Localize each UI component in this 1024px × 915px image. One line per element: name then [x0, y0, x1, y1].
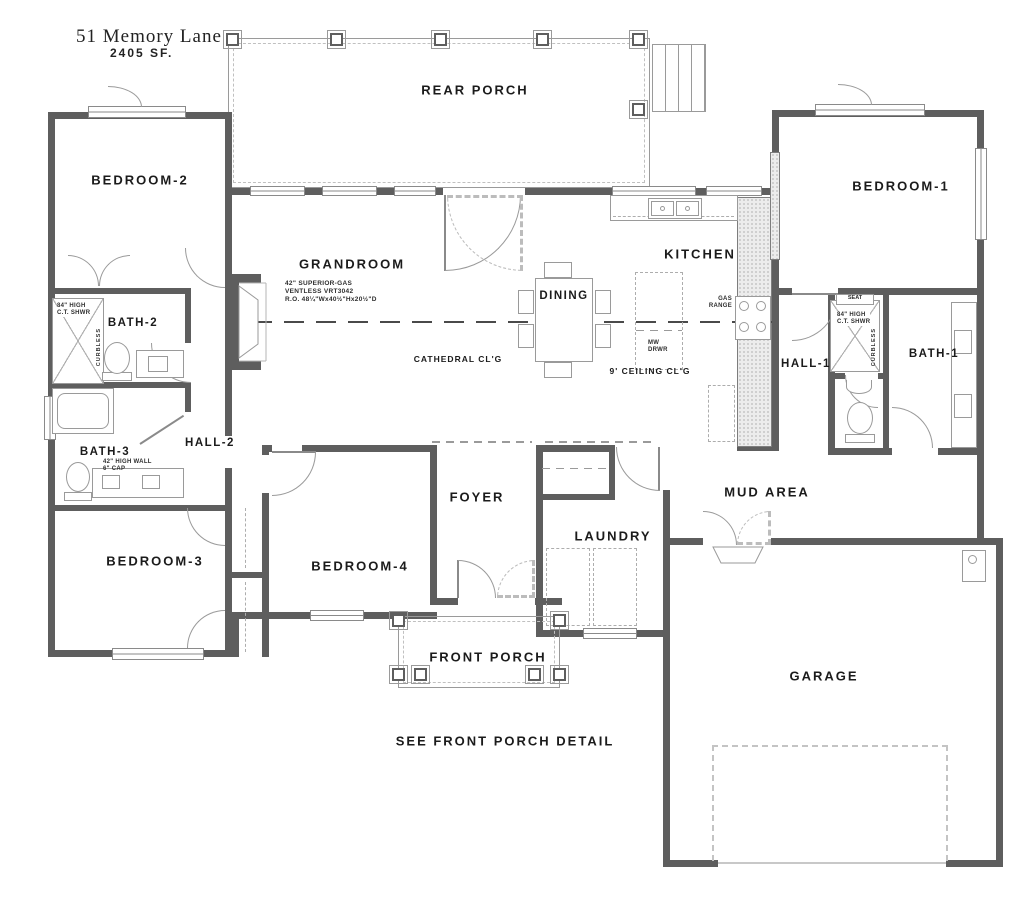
fireplace [226, 272, 274, 372]
kitchen-island [635, 272, 683, 370]
wall-segment [771, 538, 1003, 545]
room-label-bedroom-1: BEDROOM-1 [852, 179, 949, 194]
vanity-sink [148, 356, 168, 372]
rear-porch-steps [652, 44, 706, 112]
wall-segment [883, 295, 889, 453]
wall-segment [185, 288, 191, 343]
cased-opening [545, 441, 657, 443]
door-swing [703, 511, 737, 545]
vanity-sink [102, 475, 120, 489]
wall-segment [663, 490, 670, 637]
room-label-dining: DINING [537, 290, 590, 302]
room-label-bath-3: BATH-3 [80, 446, 130, 458]
door-leaf-diagonal [139, 415, 184, 445]
dining-chair [595, 290, 611, 314]
mud-lockers [708, 385, 735, 442]
wall-segment [537, 494, 615, 500]
shower-spec-line2: C.T. SHWR [57, 310, 90, 316]
wall-segment [828, 373, 845, 379]
wall-sink [846, 380, 872, 394]
toilet-bowl [847, 402, 873, 434]
bath3-wall-note: 42" HIGH WALL 6" CAP [103, 459, 152, 473]
toilet-tank [845, 434, 875, 443]
wall-segment [225, 572, 265, 578]
note-see-front-porch-detail: SEE FRONT PORCH DETAIL [396, 734, 615, 749]
shower-spec-line1: 84" HIGH [57, 303, 86, 309]
porch-column [392, 614, 405, 627]
burner [739, 301, 749, 311]
room-label-bedroom-3: BEDROOM-3 [106, 554, 203, 569]
gas-range-note-line1: GAS [718, 296, 732, 302]
window [394, 186, 436, 196]
door-swing-dashed [737, 511, 771, 545]
dining-chair [544, 262, 572, 278]
shower-spec-line2: C.T. SHWR [837, 319, 870, 325]
room-label-kitchen: KITCHEN [664, 247, 736, 262]
wall-segment [663, 630, 670, 867]
dining-chair [518, 324, 534, 348]
burner [739, 322, 749, 332]
door-swing [185, 248, 225, 288]
plan-square-footage: 2405 SF. [110, 46, 173, 60]
porch-column [330, 33, 343, 46]
shower-spec-line1: 84" HIGH [837, 312, 866, 318]
wall-segment [225, 112, 232, 192]
cased-opening [432, 441, 532, 443]
burner [756, 322, 766, 332]
bathtub-inner [57, 393, 109, 429]
porch-column [414, 668, 427, 681]
closet-door-swing [187, 508, 225, 546]
room-label-hall-2: HALL-2 [185, 437, 235, 449]
porch-column [434, 33, 447, 46]
wall-segment [663, 538, 703, 545]
dining-chair [518, 290, 534, 314]
sink-drain [685, 206, 690, 211]
wall-segment [828, 448, 892, 455]
microwave-drawer-note: MW DRWR [648, 340, 668, 354]
fireplace-spec-line3: R.O. 48¼"Wx40½"Hx20½"D [285, 296, 377, 303]
burner [756, 301, 766, 311]
window [815, 104, 925, 116]
plan-address: 51 Memory Lane [76, 26, 222, 48]
porch-column [528, 668, 541, 681]
wall-segment [430, 598, 458, 605]
porch-column [553, 614, 566, 627]
wall-segment [302, 445, 437, 452]
window [112, 648, 204, 660]
window-swing-mark [838, 84, 872, 105]
wall-segment [48, 288, 191, 294]
note-cathedral-ceiling: CATHEDRAL CL'G [414, 354, 502, 364]
vanity-sink [142, 475, 160, 489]
room-label-laundry: LAUNDRY [574, 529, 651, 544]
toilet-tank [64, 492, 92, 501]
garage-door-clearance [712, 745, 948, 861]
door-swing [892, 407, 933, 448]
closet-door-swing [187, 610, 225, 648]
window [88, 106, 186, 118]
window [975, 148, 987, 240]
toilet-bowl [104, 342, 130, 374]
porch-column [392, 668, 405, 681]
room-label-mud-area: MUD AREA [724, 485, 810, 500]
room-label-bath-1: BATH-1 [909, 348, 959, 360]
closet-door-swing [99, 255, 130, 286]
wall-segment [996, 538, 1003, 867]
rear-porch-outline [228, 38, 650, 188]
wall-segment [946, 860, 1003, 867]
sink-drain [660, 206, 665, 211]
mw-line1: MW [648, 340, 659, 346]
garage-door-opening [718, 862, 946, 864]
fireplace-spec-line1: 42" SUPERIOR-GAS [285, 280, 352, 287]
gas-range-note: GAS RANGE [690, 296, 732, 310]
ceiling-ridge-centerline [252, 321, 772, 323]
porch-column [226, 33, 239, 46]
floor-plan: 51 Memory Lane 2405 SF. REAR PORCH [0, 0, 1024, 915]
door-swing-dashed [497, 560, 535, 598]
room-label-rear-porch: REAR PORCH [421, 83, 528, 98]
bath3-wall-line2: 6" CAP [103, 466, 125, 472]
porch-column [632, 103, 645, 116]
door-swing [616, 447, 660, 491]
room-label-hall-1: HALL-1 [781, 358, 831, 370]
window [310, 610, 364, 621]
mw-line2: DRWR [648, 347, 668, 353]
wall-hatch [770, 152, 780, 260]
fireplace-spec-line2: VENTLESS VRT3042 [285, 288, 353, 295]
gas-range-note-line2: RANGE [709, 303, 732, 309]
vanity-sink [954, 394, 972, 418]
window-swing-mark [108, 86, 142, 107]
room-label-front-porch: FRONT PORCH [429, 650, 546, 665]
wall-segment [779, 288, 792, 295]
fireplace-spec: 42" SUPERIOR-GAS VENTLESS VRT3042 R.O. 4… [285, 280, 377, 303]
closet-shelf [542, 468, 606, 469]
bath3-wall-line1: 42" HIGH WALL [103, 459, 152, 465]
porch-column [632, 33, 645, 46]
dining-chair [595, 324, 611, 348]
porch-column [536, 33, 549, 46]
window [322, 186, 377, 196]
water-heater-dial [968, 555, 977, 564]
room-label-bedroom-2: BEDROOM-2 [91, 173, 188, 188]
wall-segment [938, 448, 984, 455]
note-nine-ft-ceiling: 9' CEILING CL'G [610, 366, 691, 376]
wall-segment [262, 445, 272, 452]
wall-segment [225, 468, 232, 657]
window [250, 186, 305, 196]
room-label-bedroom-4: BEDROOM-4 [311, 559, 408, 574]
wall-segment [430, 445, 437, 605]
porch-column [553, 668, 566, 681]
vanity-bath1 [951, 302, 977, 448]
door-swing [458, 560, 496, 598]
door-swing [272, 452, 316, 496]
room-label-grandroom: GRANDROOM [299, 257, 405, 272]
wall-segment [536, 445, 543, 637]
curbless-note: CURBLESS [871, 328, 877, 366]
garage-step [712, 546, 764, 564]
island-divider [636, 330, 682, 331]
wall-segment [609, 445, 615, 500]
shower-spec-bath2: 84" HIGH C.T. SHWR [57, 303, 90, 317]
dryer [593, 548, 637, 626]
curbless-note: CURBLESS [96, 328, 102, 366]
dining-chair [544, 362, 572, 378]
shower-seat: SEAT [836, 294, 874, 305]
closet-rod [245, 582, 246, 652]
wall-segment [663, 860, 718, 867]
shower-spec-bath1: 84" HIGH C.T. SHWR [837, 312, 870, 326]
toilet-bowl [66, 462, 90, 492]
closet-rod [245, 508, 246, 568]
room-label-bath-2: BATH-2 [108, 317, 158, 329]
room-label-garage: GARAGE [789, 669, 858, 684]
window [583, 628, 637, 639]
rear-porch-decking [233, 43, 645, 183]
room-label-foyer: FOYER [450, 490, 505, 505]
wall-segment [185, 382, 191, 412]
closet-door-swing [68, 255, 99, 286]
wall-segment [537, 445, 613, 452]
